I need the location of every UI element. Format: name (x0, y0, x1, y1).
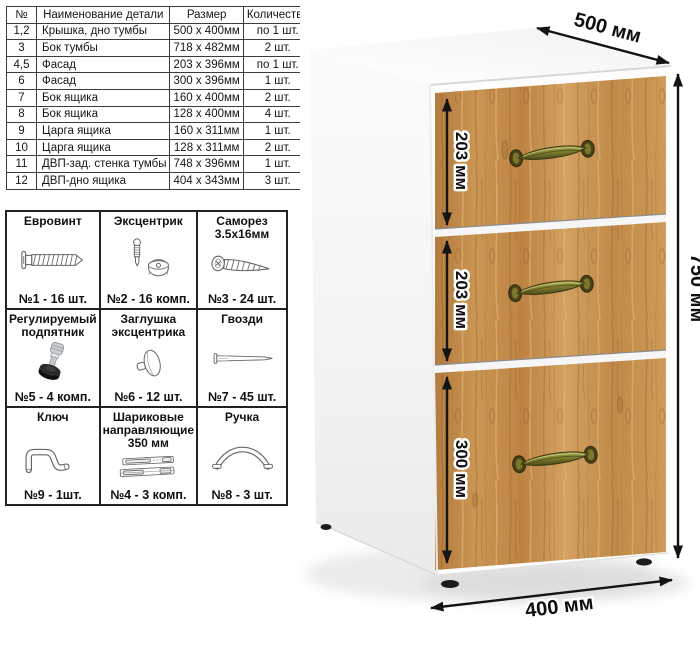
table-row: 4,5Фасад203 х 396ммпо 1 шт. (7, 56, 313, 73)
table-cell: 6 (7, 73, 37, 90)
cam-cap-icon (103, 339, 194, 390)
table-cell: Царга ящика (37, 123, 170, 140)
hardware-count: №1 - 16 шт. (19, 292, 87, 306)
drawer-3-dimension-label: 300 мм (452, 440, 471, 498)
nail-icon (200, 326, 284, 390)
col-header-name: Наименование детали (37, 7, 170, 24)
table-cell: 404 х 343мм (170, 172, 243, 189)
table-cell: Бок ящика (37, 106, 170, 123)
hardware-cell-self-tapping-screw: Саморез 3.5х16мм№3 - 24 шт. (197, 211, 287, 309)
table-cell: 300 х 396мм (170, 73, 243, 90)
hardware-cell-euro-screw: Евровинт№1 - 16 шт. (6, 211, 100, 309)
table-cell: 203 х 396мм (170, 56, 243, 73)
table-cell: Фасад (37, 56, 170, 73)
hardware-cell-drawer-slides: Шариковые направляющие 350 мм№4 - 3 комп… (100, 407, 197, 505)
hardware-count: №7 - 45 шт. (208, 390, 276, 404)
table-row: 1,2Крышка, дно тумбы500 х 400ммпо 1 шт. (7, 23, 313, 40)
table-cell: 10 (7, 139, 37, 156)
cabinet-photo: 500 мм 750 мм 400 мм 203 мм 203 мм 300 м… (300, 0, 700, 648)
hardware-title: Саморез 3.5х16мм (200, 215, 284, 241)
adjustable-foot-icon (9, 339, 97, 390)
hardware-cell-hex-key: Ключ№9 - 1шт. (6, 407, 100, 505)
foot (321, 524, 332, 530)
table-row: 8Бок ящика128 х 400мм4 шт. (7, 106, 313, 123)
table-cell: 500 х 400мм (170, 23, 243, 40)
table-cell: 9 (7, 123, 37, 140)
hardware-cell-cam-cap: Заглушка эксцентрика№6 - 12 шт. (100, 309, 197, 407)
parts-table-header-row: № Наименование детали Размер Количество (7, 7, 313, 24)
euro-screw-icon (9, 228, 97, 292)
hardware-count: №8 - 3 шт. (211, 488, 272, 502)
table-cell: Царга ящика (37, 139, 170, 156)
hex-key-icon (9, 424, 97, 488)
table-cell: 8 (7, 106, 37, 123)
hardware-count: №2 - 16 комп. (107, 292, 190, 306)
table-cell: 160 х 400мм (170, 89, 243, 106)
table-cell: 12 (7, 172, 37, 189)
hardware-title: Гвозди (221, 313, 263, 326)
table-row: 6Фасад300 х 396мм1 шт. (7, 73, 313, 90)
hardware-title: Ключ (37, 411, 69, 424)
table-cell: 718 х 482мм (170, 40, 243, 57)
hardware-cell-cam-lock: Эксцентрик№2 - 16 комп. (100, 211, 197, 309)
col-header-size: Размер (170, 7, 243, 24)
table-row: 10Царга ящика128 х 311мм2 шт. (7, 139, 313, 156)
table-cell: Фасад (37, 73, 170, 90)
table-row: 3Бок тумбы718 х 482мм2 шт. (7, 40, 313, 57)
table-row: 12ДВП-дно ящика404 х 343мм3 шт. (7, 172, 313, 189)
table-row: 11ДВП-зад. стенка тумбы748 х 396мм1 шт. (7, 156, 313, 173)
height-dimension-label: 750 мм (686, 254, 700, 323)
table-row: 9Царга ящика160 х 311мм1 шт. (7, 123, 313, 140)
hardware-title: Евровинт (24, 215, 82, 228)
hardware-title: Ручка (225, 411, 259, 424)
table-cell: 128 х 311мм (170, 139, 243, 156)
foot (636, 558, 652, 565)
table-cell: Крышка, дно тумбы (37, 23, 170, 40)
self-tapping-screw-icon (200, 241, 284, 292)
table-cell: 1,2 (7, 23, 37, 40)
hardware-count: №5 - 4 комп. (15, 390, 91, 404)
col-header-number: № (7, 7, 37, 24)
table-cell: Бок тумбы (37, 40, 170, 57)
hardware-count: №9 - 1шт. (24, 488, 82, 502)
hardware-cell-handle: Ручка№8 - 3 шт. (197, 407, 287, 505)
parts-table-body: 1,2Крышка, дно тумбы500 х 400ммпо 1 шт.3… (7, 23, 313, 189)
hardware-title: Шариковые направляющие 350 мм (103, 411, 194, 450)
hardware-title: Заглушка эксцентрика (103, 313, 194, 339)
table-cell: ДВП-дно ящика (37, 172, 170, 189)
table-cell: 128 х 400мм (170, 106, 243, 123)
table-row: 7Бок ящика160 х 400мм2 шт. (7, 89, 313, 106)
handle-icon (200, 424, 284, 488)
table-cell: ДВП-зад. стенка тумбы (37, 156, 170, 173)
table-cell: 4,5 (7, 56, 37, 73)
hardware-grid: Евровинт№1 - 16 шт.Эксцентрик№2 - 16 ком… (5, 210, 288, 506)
hardware-cell-nail: Гвозди№7 - 45 шт. (197, 309, 287, 407)
hardware-count: №4 - 3 комп. (110, 488, 186, 502)
assembly-instruction-page: № Наименование детали Размер Количество … (0, 0, 700, 648)
table-cell: Бок ящика (37, 89, 170, 106)
hardware-count: №6 - 12 шт. (114, 390, 182, 404)
table-cell: 7 (7, 89, 37, 106)
drawer-2-dimension-label: 203 мм (452, 271, 471, 329)
cabinet-left-side (310, 50, 437, 575)
table-cell: 11 (7, 156, 37, 173)
cam-lock-icon (103, 228, 194, 292)
parts-table: № Наименование детали Размер Количество … (6, 6, 313, 190)
table-cell: 3 (7, 40, 37, 57)
foot (441, 580, 459, 588)
hardware-cell-adjustable-foot: Регулируемый подпятник№5 - 4 комп. (6, 309, 100, 407)
table-cell: 160 х 311мм (170, 123, 243, 140)
hardware-title: Эксцентрик (114, 215, 183, 228)
hardware-title: Регулируемый подпятник (9, 313, 97, 339)
drawer-slides-icon (103, 450, 194, 488)
table-cell: 748 х 396мм (170, 156, 243, 173)
drawer-1-dimension-label: 203 мм (452, 132, 471, 190)
hardware-count: №3 - 24 шт. (208, 292, 276, 306)
